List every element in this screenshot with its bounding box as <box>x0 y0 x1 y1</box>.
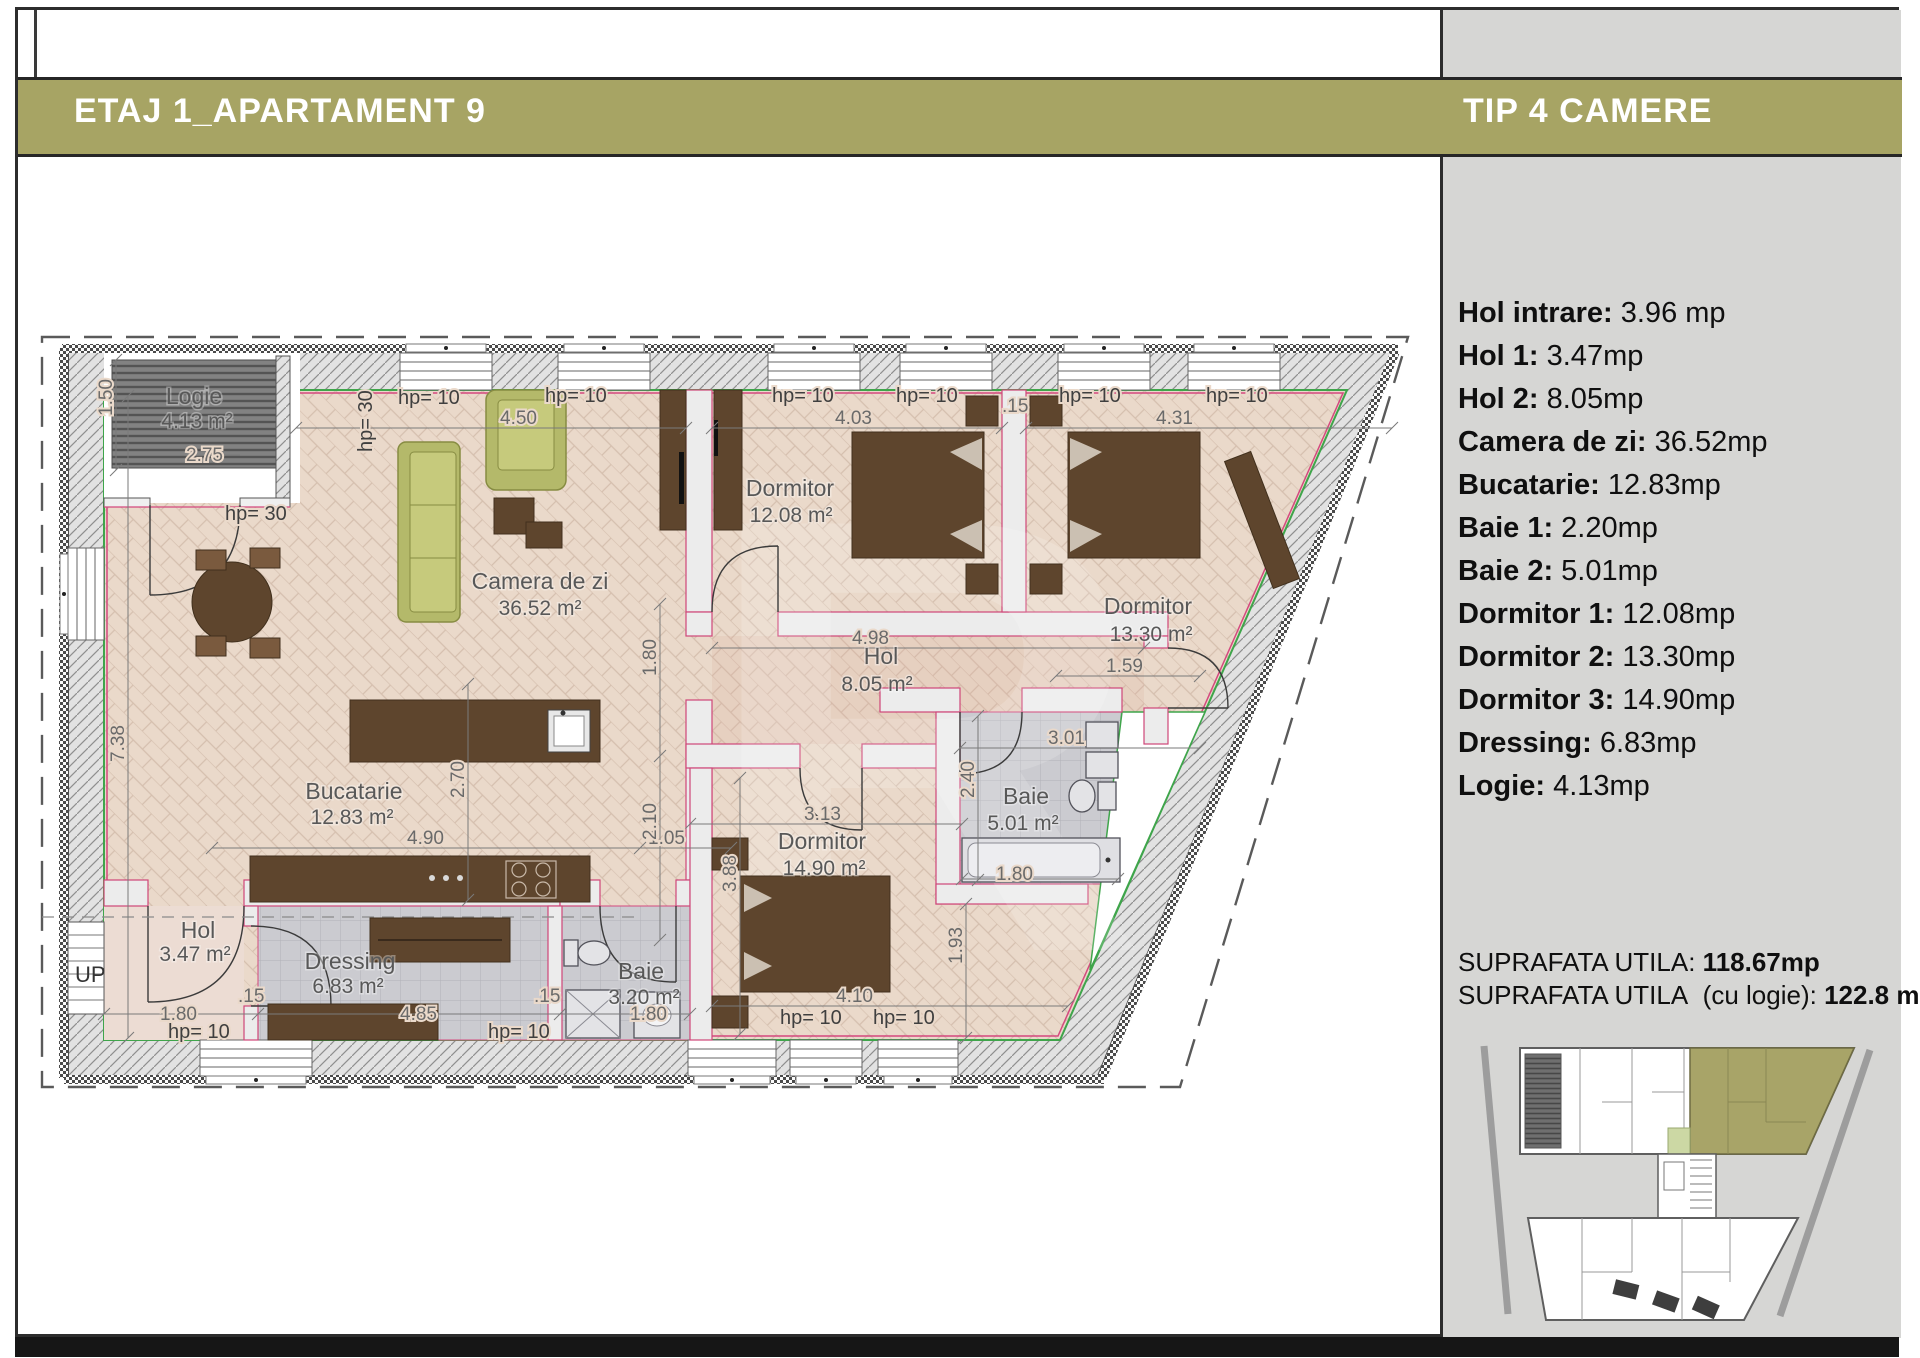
svg-text:4.90: 4.90 <box>407 828 444 849</box>
svg-text:1.80: 1.80 <box>640 639 661 676</box>
room-area-item: Baie 2: 5.01mp <box>1458 550 1888 593</box>
floor-plan: R <box>19 157 1440 1338</box>
up-label: UP <box>75 962 106 987</box>
room-area-item: Hol 2: 8.05mp <box>1458 378 1888 421</box>
svg-text:2.10: 2.10 <box>640 803 661 840</box>
svg-text:7.38: 7.38 <box>108 725 129 762</box>
svg-text:Hol: Hol <box>864 643 899 669</box>
minimap-stair-core <box>1658 1154 1716 1218</box>
svg-text:Logie: Logie <box>166 383 222 409</box>
svg-text:6.83 m²: 6.83 m² <box>312 975 383 998</box>
svg-text:36.52 m²: 36.52 m² <box>499 597 582 620</box>
svg-text:4.13 m²: 4.13 m² <box>161 410 232 433</box>
svg-text:.15: .15 <box>1002 396 1028 417</box>
svg-text:3.20 m²: 3.20 m² <box>608 986 679 1009</box>
room-area-item: Dormitor 2: 13.30mp <box>1458 636 1888 679</box>
svg-text:4.31: 4.31 <box>1156 408 1193 429</box>
minimap-bottom-wing <box>1528 1218 1798 1320</box>
room-area-item: Dressing: 6.83mp <box>1458 722 1888 765</box>
page-title: ETAJ 1_APARTAMENT 9 <box>74 92 486 131</box>
svg-text:hp= 10: hp= 10 <box>772 385 834 407</box>
svg-text:Dressing: Dressing <box>305 948 396 974</box>
top-left-divider-line <box>34 10 37 77</box>
svg-text:hp= 10: hp= 10 <box>545 385 607 407</box>
svg-text:Hol: Hol <box>181 917 216 943</box>
svg-text:3.88: 3.88 <box>720 855 741 892</box>
dining-table <box>192 548 280 658</box>
svg-text:5.01 m²: 5.01 m² <box>987 812 1058 835</box>
svg-text:hp= 30: hp= 30 <box>355 390 377 452</box>
usable-area-totals: SUPRAFATA UTILA: 118.67mp SUPRAFATA UTIL… <box>1458 946 1898 1012</box>
svg-text:2.40: 2.40 <box>958 761 979 798</box>
svg-text:Baie: Baie <box>1003 783 1049 809</box>
tv-cabinet <box>660 390 686 530</box>
total-usable-area-with-loggia: SUPRAFATA UTILA (cu logie): 122.8 mp <box>1458 979 1898 1012</box>
svg-text:2.70: 2.70 <box>448 761 469 798</box>
apartment-type-title: TIP 4 CAMERE <box>1463 92 1712 131</box>
svg-text:12.83 m²: 12.83 m² <box>311 806 394 829</box>
site-line-left <box>1484 1046 1508 1314</box>
room-area-item: Hol 1: 3.47mp <box>1458 335 1888 378</box>
svg-text:hp= 10: hp= 10 <box>896 385 958 407</box>
svg-text:4.03: 4.03 <box>835 408 872 429</box>
svg-text:.15: .15 <box>238 986 264 1007</box>
svg-text:Camera de zi: Camera de zi <box>472 568 609 594</box>
svg-text:4.85: 4.85 <box>400 1004 437 1025</box>
svg-text:hp= 30: hp= 30 <box>225 503 287 525</box>
total-usable-area: SUPRAFATA UTILA: 118.67mp <box>1458 946 1898 979</box>
svg-text:hp= 10: hp= 10 <box>873 1007 935 1029</box>
kitchen-island <box>350 700 600 762</box>
room-area-item: Logie: 4.13mp <box>1458 765 1888 808</box>
svg-text:Bucatarie: Bucatarie <box>305 778 402 804</box>
svg-text:.15: .15 <box>534 986 560 1007</box>
kitchen-counter <box>250 856 590 902</box>
svg-text:hp= 10: hp= 10 <box>1206 385 1268 407</box>
svg-text:Dormitor: Dormitor <box>778 828 867 854</box>
sofa <box>398 442 460 622</box>
room-area-item: Hol intrare: 3.96 mp <box>1458 292 1888 335</box>
svg-text:3.47 m²: 3.47 m² <box>159 943 230 966</box>
svg-text:1.93: 1.93 <box>946 927 967 964</box>
svg-text:14.90 m²: 14.90 m² <box>783 857 866 880</box>
svg-text:1.80: 1.80 <box>160 1004 197 1025</box>
svg-text:3.01: 3.01 <box>1048 728 1085 749</box>
svg-text:13.30 m²: 13.30 m² <box>1110 623 1193 646</box>
floor-overview-minimap <box>1462 1032 1892 1324</box>
room-area-item: Camera de zi: 36.52mp <box>1458 421 1888 464</box>
top-right-gray-strip <box>1440 10 1901 77</box>
svg-text:12.08 m²: 12.08 m² <box>750 504 833 527</box>
room-area-item: Dormitor 1: 12.08mp <box>1458 593 1888 636</box>
svg-text:3.13: 3.13 <box>804 804 841 825</box>
room-area-item: Dormitor 3: 14.90mp <box>1458 679 1888 722</box>
room-area-item: Baie 1: 2.20mp <box>1458 507 1888 550</box>
svg-text:hp= 10: hp= 10 <box>398 387 460 409</box>
bottom-black-bar <box>15 1337 1899 1357</box>
svg-text:hp= 10: hp= 10 <box>780 1007 842 1029</box>
highlighted-apartment <box>1690 1048 1854 1154</box>
room-area-item: Bucatarie: 12.83mp <box>1458 464 1888 507</box>
svg-text:hp= 10: hp= 10 <box>1059 385 1121 407</box>
svg-text:8.05 m²: 8.05 m² <box>841 673 912 696</box>
svg-text:Dormitor: Dormitor <box>1104 593 1193 619</box>
svg-text:4.10: 4.10 <box>836 986 873 1007</box>
svg-text:hp= 10: hp= 10 <box>488 1021 550 1043</box>
minimap-top-wing <box>1520 1048 1854 1154</box>
insulation-band-left <box>59 348 68 1078</box>
svg-text:4.50: 4.50 <box>500 408 537 429</box>
svg-text:Baie: Baie <box>618 958 664 984</box>
svg-text:1.50: 1.50 <box>96 379 117 416</box>
svg-text:Dormitor: Dormitor <box>746 475 835 501</box>
svg-text:2.75: 2.75 <box>186 445 223 466</box>
svg-text:1.80: 1.80 <box>996 864 1033 885</box>
svg-text:1.59: 1.59 <box>1106 656 1143 677</box>
room-area-list: Hol intrare: 3.96 mp Hol 1: 3.47mp Hol 2… <box>1458 292 1888 808</box>
